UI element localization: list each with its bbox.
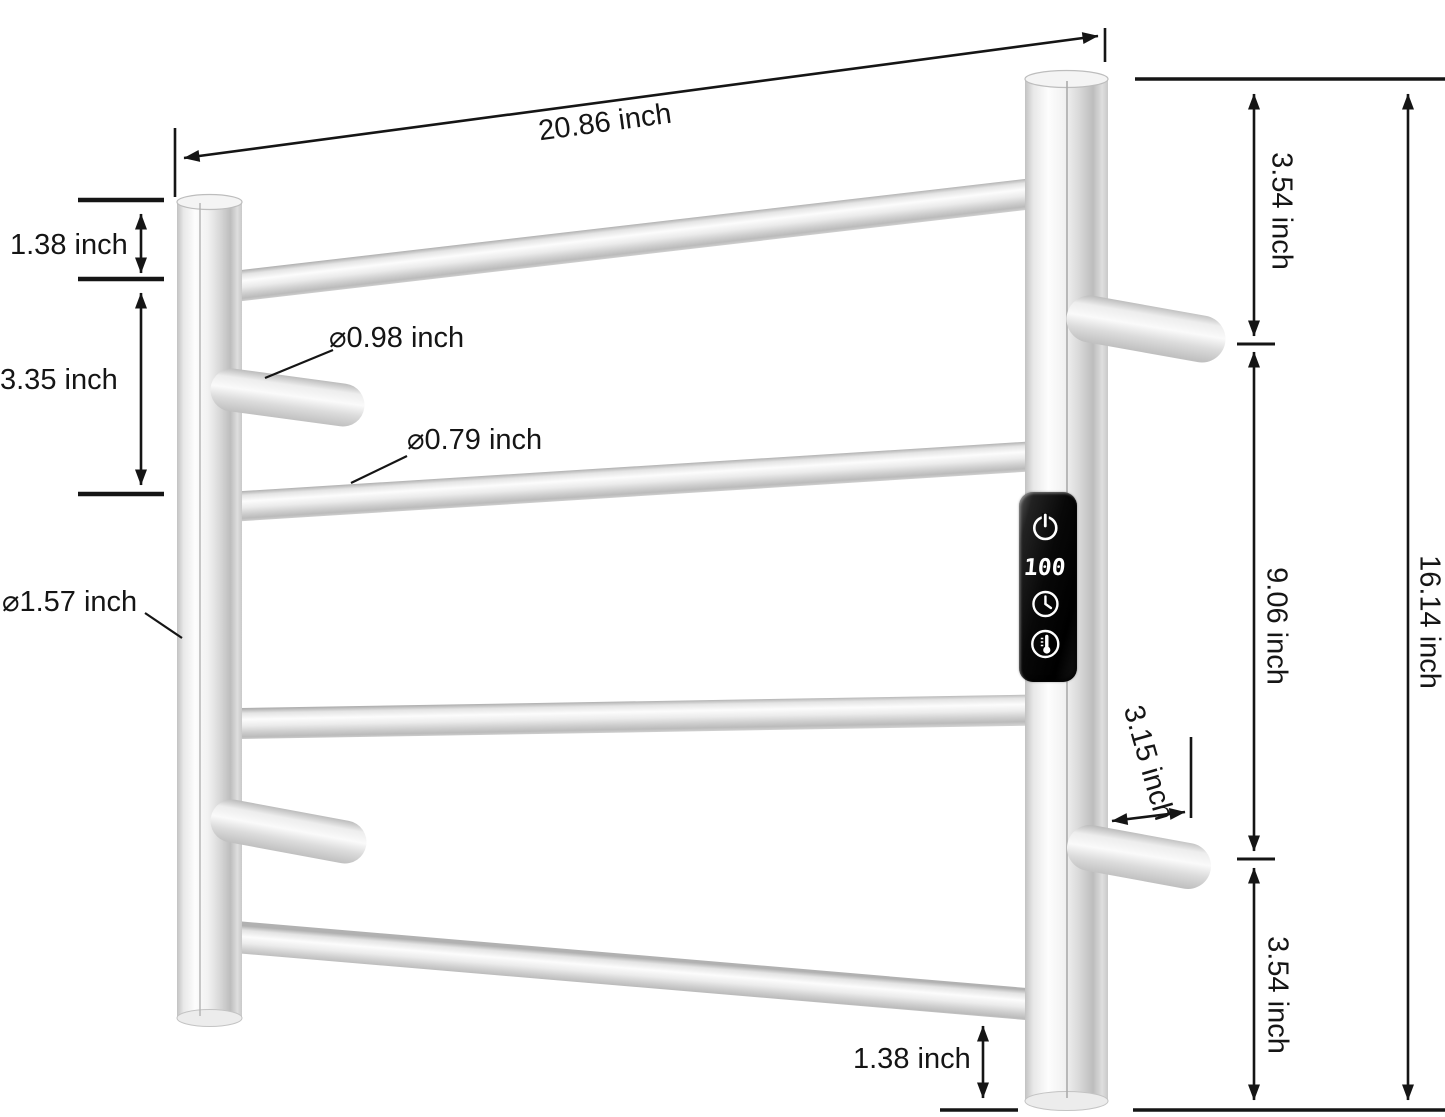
- towel-warmer-illustration: [0, 0, 1445, 1117]
- dim-label-post-diameter: ⌀1.57 inch: [2, 588, 137, 617]
- hook-left-top: [232, 390, 343, 405]
- dim-label-bottom-gap: 1.38 inch: [853, 1045, 971, 1074]
- dim-label-left-spacing: 3.35 inch: [0, 366, 118, 395]
- left-post-top-cap: [177, 195, 242, 210]
- dim-label-right-middle-span: 9.06 inch: [1262, 567, 1291, 685]
- leader-bar-diameter: [351, 456, 407, 483]
- bar-2: [212, 456, 1038, 508]
- display-value: 100: [1023, 555, 1067, 581]
- leader-hook-diameter: [265, 350, 333, 378]
- leader-post-diameter: [145, 613, 182, 638]
- left-post-bottom-cap: [177, 1010, 242, 1027]
- dim-label-total-height: 16.14 inch: [1415, 555, 1444, 689]
- dim-label-right-bottom-gap: 3.54 inch: [1263, 936, 1292, 1054]
- temperature-icon: [1048, 644, 1082, 678]
- dim-label-bar-diameter: ⌀0.79 inch: [407, 426, 542, 455]
- product-dimension-diagram: 20.86 inch 1.38 inch 3.35 inch ⌀1.57 inc…: [0, 0, 1445, 1117]
- rack-bars: [212, 193, 1038, 1005]
- dim-label-left-top-gap: 1.38 inch: [10, 231, 128, 260]
- bar-4: [212, 935, 1038, 1005]
- control-panel: 100: [1019, 492, 1077, 682]
- bar-3: [212, 710, 1038, 724]
- dim-top-width-line: [184, 36, 1098, 158]
- hook-right-bottom: [1090, 848, 1188, 866]
- hook-right-top: [1090, 319, 1202, 339]
- hook-left-bottom: [232, 821, 345, 842]
- dim-label-right-top-gap: 3.54 inch: [1267, 152, 1296, 270]
- dim-label-hook-diameter: ⌀0.98 inch: [329, 324, 464, 353]
- left-post: [177, 195, 242, 1027]
- bar-1: [212, 193, 1038, 289]
